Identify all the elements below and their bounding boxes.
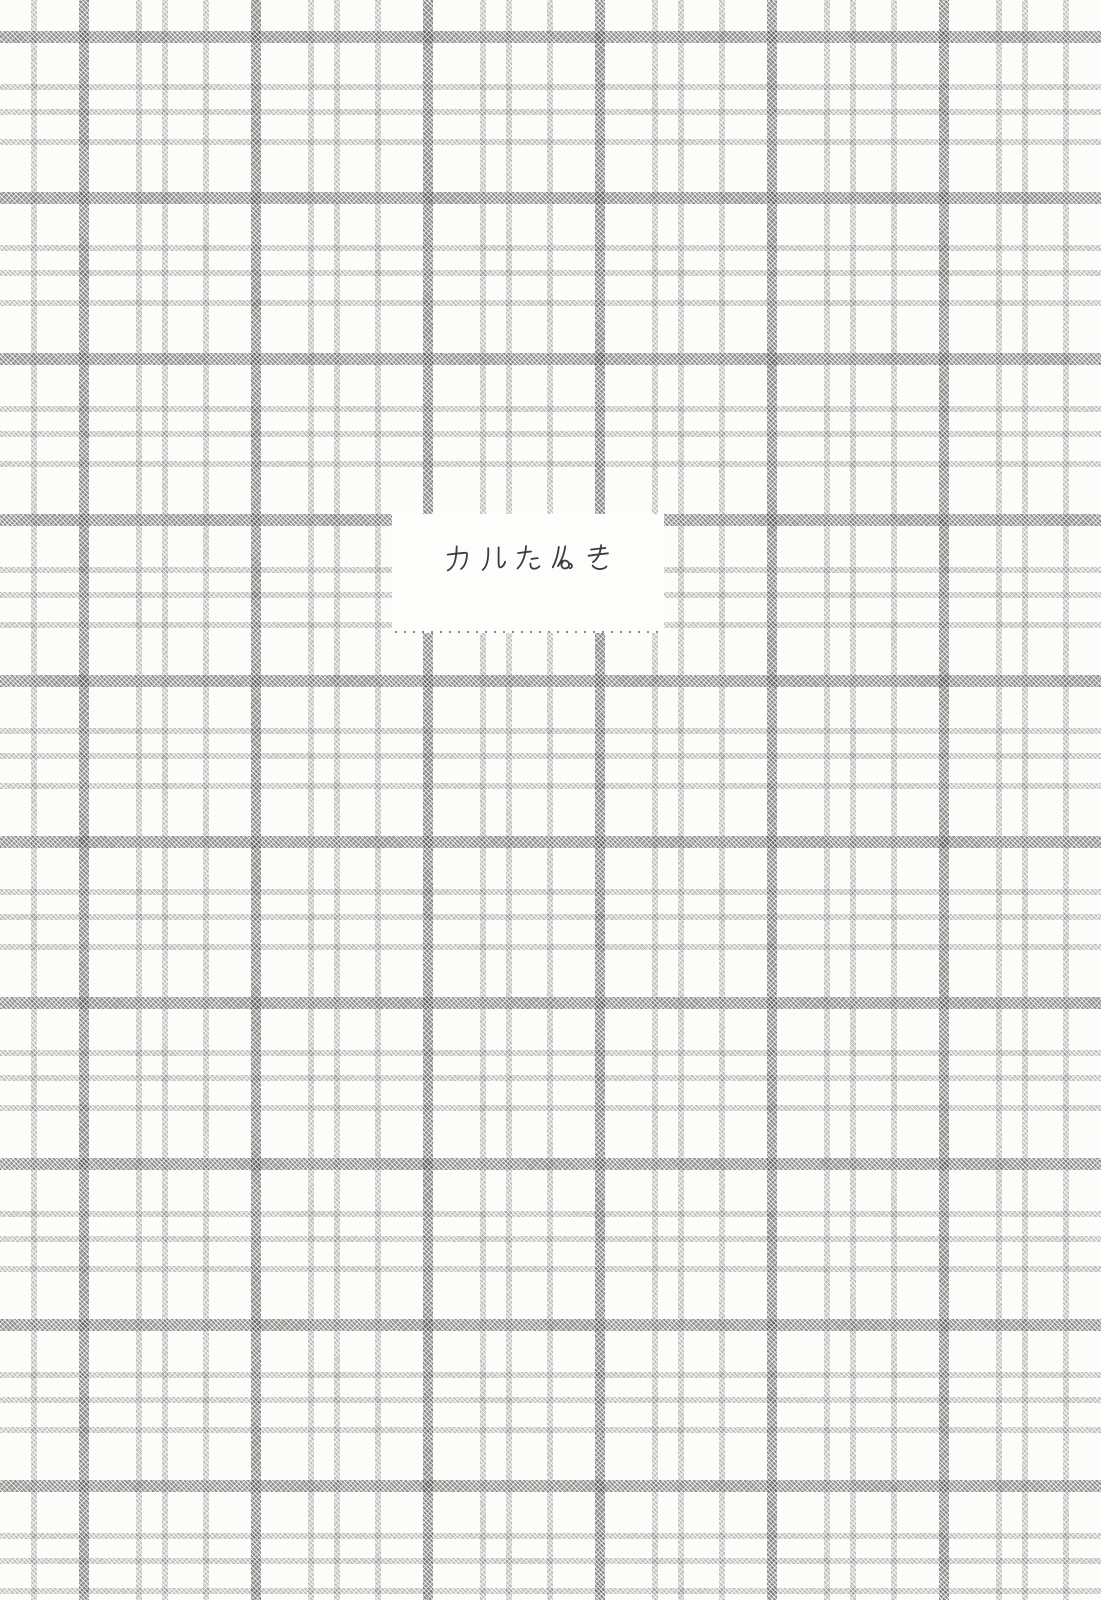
label-dotted-edge <box>395 631 661 633</box>
title-text: カルたぬき <box>392 514 664 633</box>
title-label: カルたぬき <box>392 514 664 633</box>
scanned-page: カルたぬき <box>0 0 1101 1600</box>
